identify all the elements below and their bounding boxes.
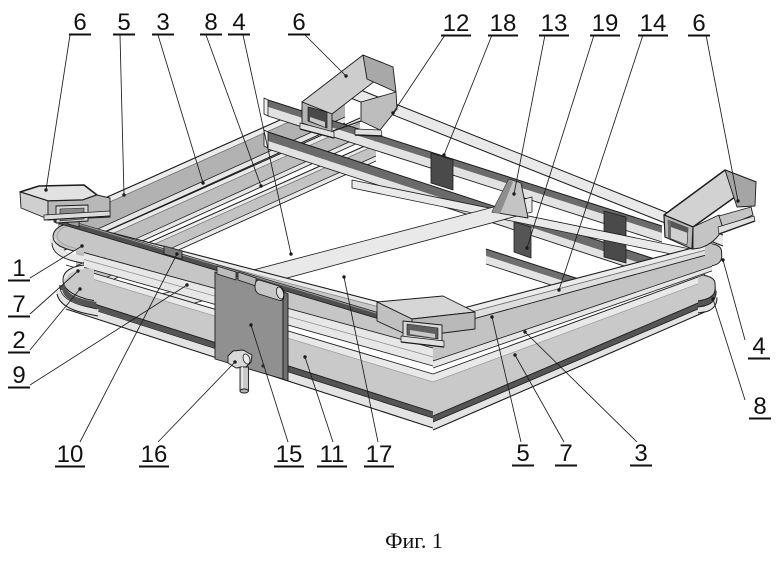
- svg-text:3: 3: [634, 440, 647, 467]
- svg-text:16: 16: [141, 441, 168, 468]
- svg-text:6: 6: [73, 9, 86, 36]
- svg-text:6: 6: [292, 9, 305, 36]
- svg-text:5: 5: [117, 9, 130, 36]
- svg-text:2: 2: [12, 327, 25, 354]
- svg-text:11: 11: [320, 441, 345, 468]
- svg-text:3: 3: [156, 9, 169, 36]
- svg-text:7: 7: [12, 291, 25, 318]
- svg-text:13: 13: [541, 10, 568, 37]
- svg-text:8: 8: [753, 393, 766, 420]
- svg-text:18: 18: [490, 10, 517, 37]
- svg-text:5: 5: [516, 440, 529, 467]
- svg-text:19: 19: [592, 10, 619, 37]
- svg-text:7: 7: [559, 440, 572, 467]
- svg-text:9: 9: [12, 362, 25, 389]
- svg-text:4: 4: [752, 333, 765, 360]
- svg-text:15: 15: [276, 441, 303, 468]
- svg-text:6: 6: [692, 10, 705, 37]
- svg-text:12: 12: [443, 10, 470, 37]
- svg-text:14: 14: [640, 10, 667, 37]
- svg-text:8: 8: [204, 9, 217, 36]
- svg-text:10: 10: [57, 441, 84, 468]
- svg-text:1: 1: [12, 255, 25, 282]
- svg-text:Фиг. 1: Фиг. 1: [385, 528, 443, 553]
- svg-text:4: 4: [232, 9, 245, 36]
- svg-text:17: 17: [366, 441, 393, 468]
